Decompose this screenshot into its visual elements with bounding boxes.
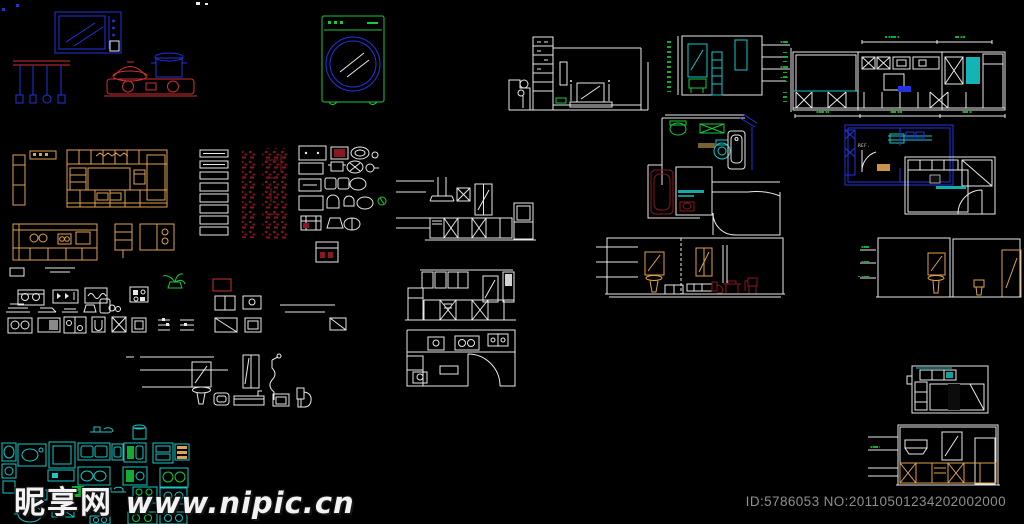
bathroom-mirror-wall-elevation [667, 36, 790, 95]
kitchen-elevation-2 [405, 270, 516, 320]
stray-marks [2, 2, 208, 11]
kitchen-elevation-tiled [868, 425, 1000, 485]
watermark: 昵享网 www.nipic.cn [14, 477, 355, 522]
kitchen-orange-elevation [13, 150, 167, 207]
washing-machine-block [322, 16, 384, 105]
appliance-blocks-rows [6, 274, 346, 333]
microwave-block [55, 12, 121, 53]
kitchen-elevation-hood [396, 177, 536, 240]
kitchen-long-elevation [783, 36, 1005, 118]
fridge-label: REF. [858, 143, 870, 149]
watermark-site-url: www.nipic.cn [126, 486, 355, 520]
bathroom-plan [648, 114, 780, 235]
bath-tile-elevation-1 [596, 238, 785, 297]
kitchen-plan-white [407, 330, 515, 386]
pot-rack-block [13, 61, 70, 103]
bath-tile-elevation-2 [858, 238, 1021, 297]
gas-stove-block [104, 53, 197, 96]
kitchen-plan-small [907, 366, 988, 413]
red-text-annotations [242, 148, 288, 240]
living-room-tv-wall-elevation [509, 37, 648, 110]
cad-sheet: REF. [0, 0, 1024, 524]
kitchen-orange-plan [10, 224, 174, 276]
watermark-site-name: 昵享网 [14, 485, 113, 521]
image-id-text: ID:5786053 NO:20110501234202002000 [746, 494, 1006, 509]
plant-block [163, 274, 185, 288]
bathroom-fixture-blocks [126, 354, 311, 407]
material-legend-swatches [200, 150, 228, 235]
sink-cooktop-blocks [299, 146, 386, 262]
cad-drawing: REF. [0, 0, 1024, 524]
